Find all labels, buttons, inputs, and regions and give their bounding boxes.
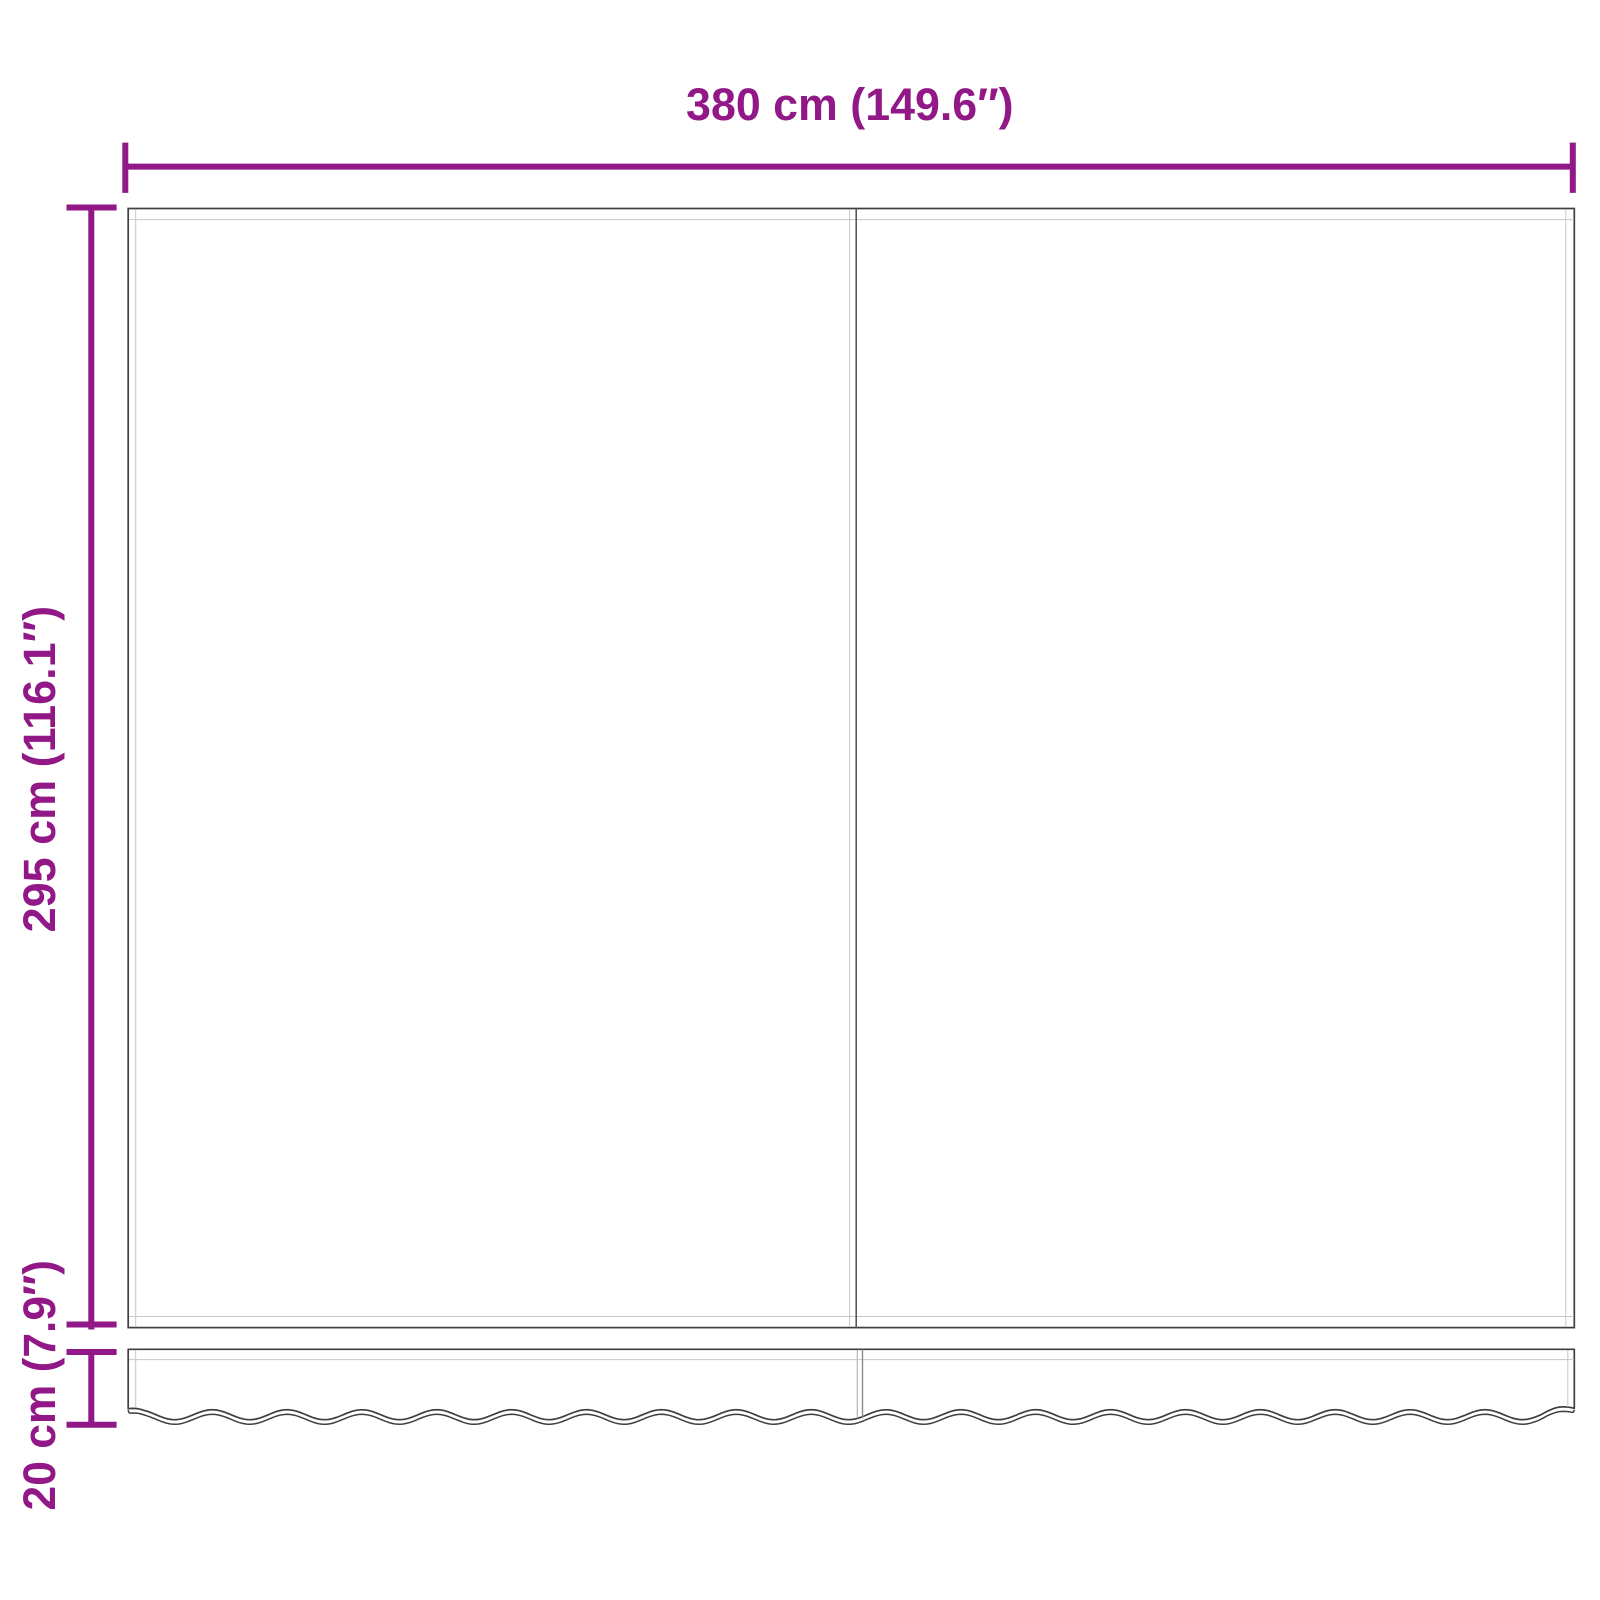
svg-text:20 cm (7.9″): 20 cm (7.9″) <box>14 1260 65 1511</box>
svg-text:295 cm (116.1″): 295 cm (116.1″) <box>14 606 65 933</box>
svg-text:380 cm (149.6″): 380 cm (149.6″) <box>686 79 1014 130</box>
